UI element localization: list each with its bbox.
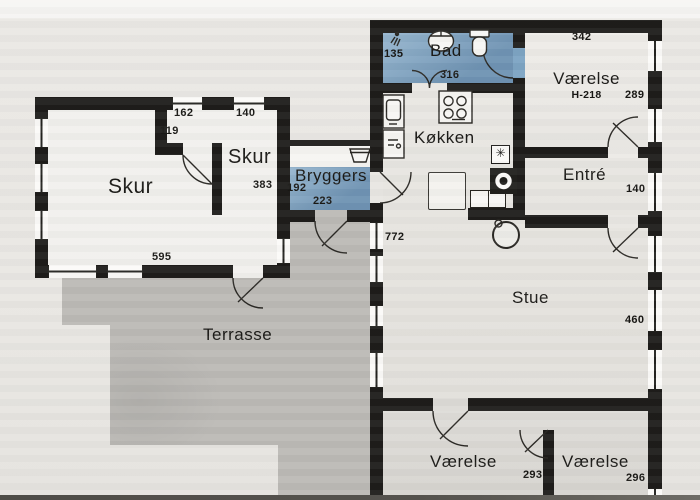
dim-label: 460 — [625, 314, 644, 326]
dim-label: 140 — [236, 107, 255, 119]
room-label-vaerelse-ne: Værelse — [525, 69, 648, 89]
door-arc — [433, 411, 468, 446]
dim-label: 192 — [287, 182, 306, 194]
dim-label: 135 — [384, 48, 403, 60]
door-arc — [315, 221, 347, 253]
door-arc — [608, 228, 638, 258]
dim-label: 595 — [152, 251, 171, 263]
stove-icon — [439, 91, 472, 123]
room-label-skur-main: Skur — [108, 175, 153, 199]
dim-label: 223 — [313, 195, 332, 207]
room-label-terrasse: Terrasse — [203, 325, 272, 345]
dim-label: 162 — [174, 107, 193, 119]
door-arc — [483, 48, 513, 78]
floor-plan: ✳ — [0, 0, 700, 500]
dim-label: 293 — [523, 469, 542, 481]
room-label-vaerelse-se: Værelse — [562, 452, 629, 472]
dim-label: 316 — [440, 69, 459, 81]
room-label-stue: Stue — [512, 288, 549, 308]
door-arc — [183, 155, 212, 184]
room-label-skur-small: Skur — [228, 146, 271, 169]
dim-label: 289 — [625, 89, 644, 101]
toilet-icon — [470, 30, 489, 56]
dim-label: 772 — [385, 231, 404, 243]
room-label-entre: Entré — [563, 165, 606, 185]
dim-label: 119 — [160, 125, 179, 137]
room-label-vaerelse-sw: Værelse — [430, 452, 497, 472]
wood-stove-icon — [493, 220, 519, 248]
door-arc — [520, 430, 548, 458]
dim-label: 342 — [572, 31, 591, 43]
chimney-icon — [490, 168, 517, 194]
door-arc — [608, 117, 638, 147]
room-label-bad: Bad — [430, 41, 462, 61]
door-arc — [380, 172, 411, 203]
door-arc — [233, 278, 263, 308]
room-label-koekken: Køkken — [414, 128, 475, 148]
dim-label: 296 — [626, 472, 645, 484]
photo-edge — [0, 495, 700, 500]
shower-icon — [391, 32, 400, 46]
dishwasher-icon — [383, 130, 404, 158]
kitchen-sink-icon — [383, 95, 404, 128]
laundry-sink-icon — [350, 149, 370, 162]
dim-label: 383 — [253, 179, 272, 191]
dim-label: 140 — [626, 183, 645, 195]
